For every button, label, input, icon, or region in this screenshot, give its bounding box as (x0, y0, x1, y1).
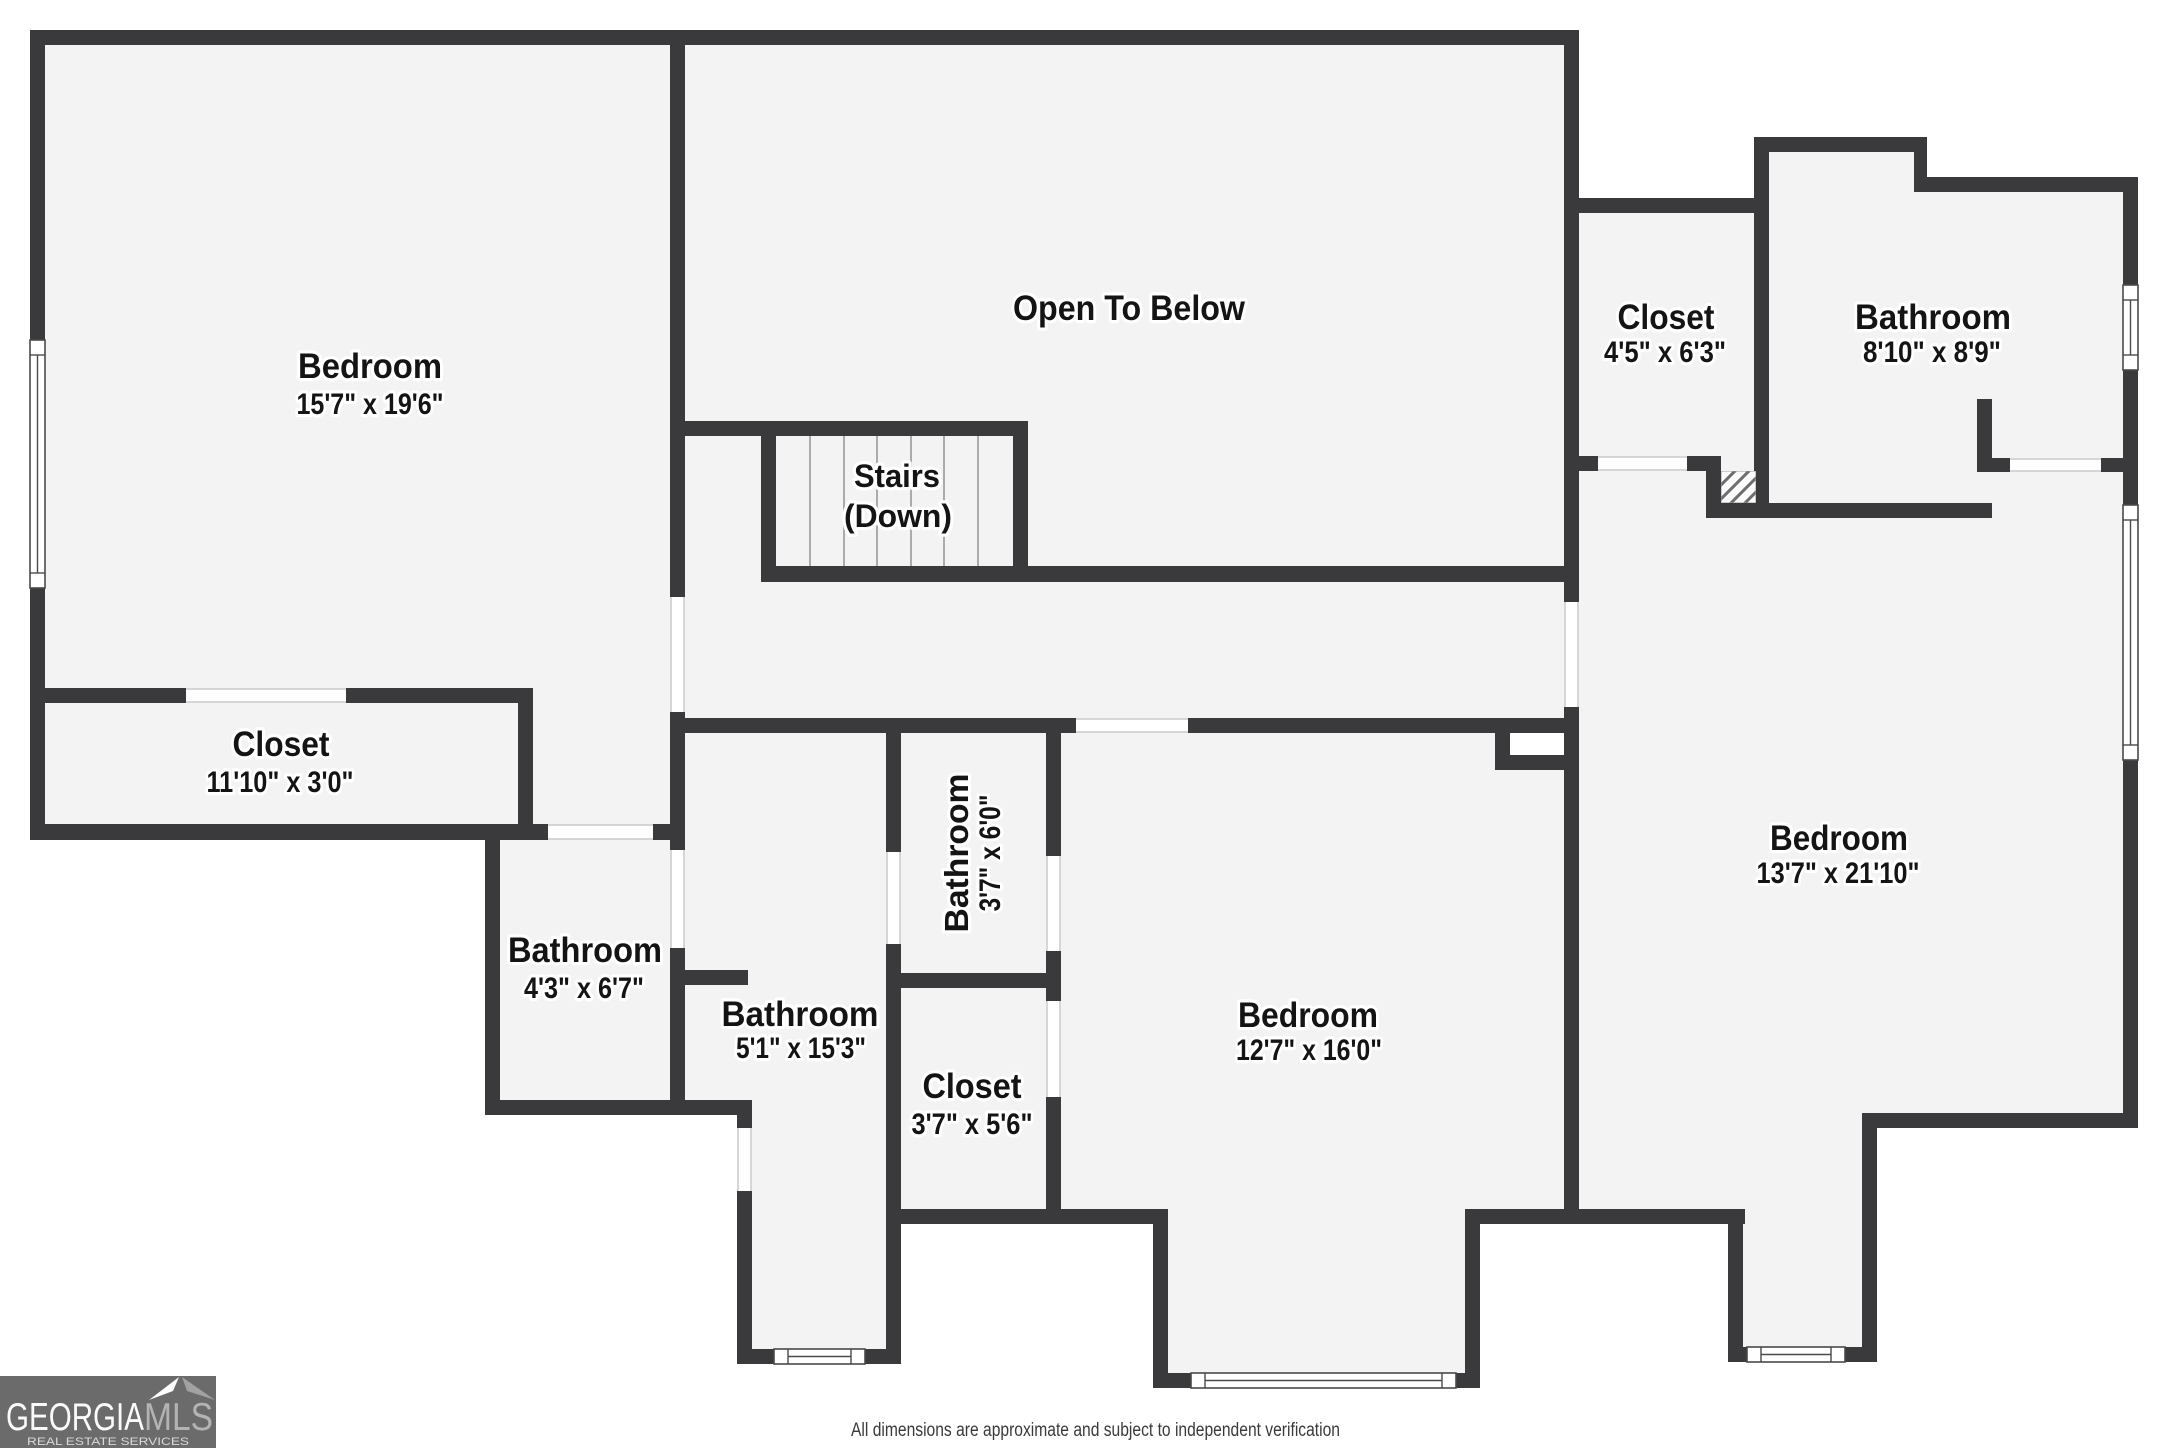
svg-text:All dimensions are approximate: All dimensions are approximate and subje… (851, 1420, 1340, 1441)
svg-text:13'7" x 21'10": 13'7" x 21'10" (1757, 857, 1920, 890)
svg-text:REAL ESTATE SERVICES: REAL ESTATE SERVICES (27, 1436, 189, 1448)
svg-text:(Down): (Down) (844, 498, 952, 534)
svg-text:11'10" x 3'0": 11'10" x 3'0" (207, 766, 354, 799)
svg-text:5'1" x 15'3": 5'1" x 15'3" (736, 1032, 866, 1065)
svg-text:Bathroom: Bathroom (938, 774, 975, 933)
svg-text:MLS: MLS (144, 1396, 213, 1439)
svg-text:Closet: Closet (923, 1067, 1022, 1106)
svg-text:Bedroom: Bedroom (1770, 819, 1908, 858)
svg-text:Bathroom: Bathroom (1855, 298, 2011, 337)
svg-text:Bathroom: Bathroom (508, 931, 662, 970)
svg-text:Closet: Closet (233, 725, 330, 764)
svg-text:Stairs: Stairs (854, 458, 940, 494)
svg-text:Bedroom: Bedroom (298, 347, 442, 386)
svg-text:4'5" x 6'3": 4'5" x 6'3" (1604, 336, 1726, 369)
svg-text:8'10" x 8'9": 8'10" x 8'9" (1863, 336, 2001, 369)
svg-text:Open To Below: Open To Below (1013, 289, 1246, 328)
svg-text:Closet: Closet (1618, 298, 1715, 337)
svg-text:GEORGIA: GEORGIA (6, 1396, 144, 1439)
svg-text:3'7" x 6'0": 3'7" x 6'0" (974, 795, 1007, 912)
svg-text:4'3" x 6'7": 4'3" x 6'7" (524, 972, 644, 1005)
svg-text:12'7" x 16'0": 12'7" x 16'0" (1236, 1034, 1382, 1067)
svg-text:15'7" x 19'6": 15'7" x 19'6" (297, 388, 444, 421)
svg-text:Bedroom: Bedroom (1238, 996, 1378, 1035)
svg-text:3'7" x 5'6": 3'7" x 5'6" (912, 1108, 1033, 1141)
svg-text:Bathroom: Bathroom (722, 995, 879, 1034)
